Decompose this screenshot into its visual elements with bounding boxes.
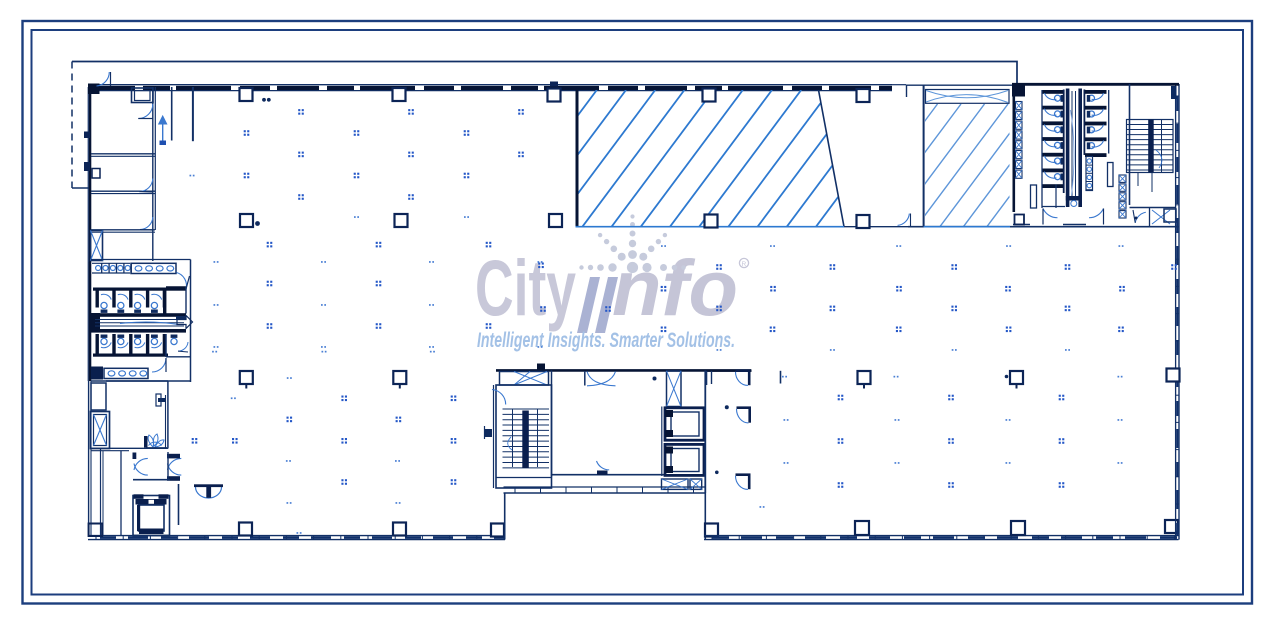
svg-text:Intelligent Insights. Smarter: Intelligent Insights. Smarter Solutions.: [477, 329, 735, 352]
svg-text:City: City: [475, 243, 576, 332]
svg-text:R: R: [742, 261, 747, 268]
